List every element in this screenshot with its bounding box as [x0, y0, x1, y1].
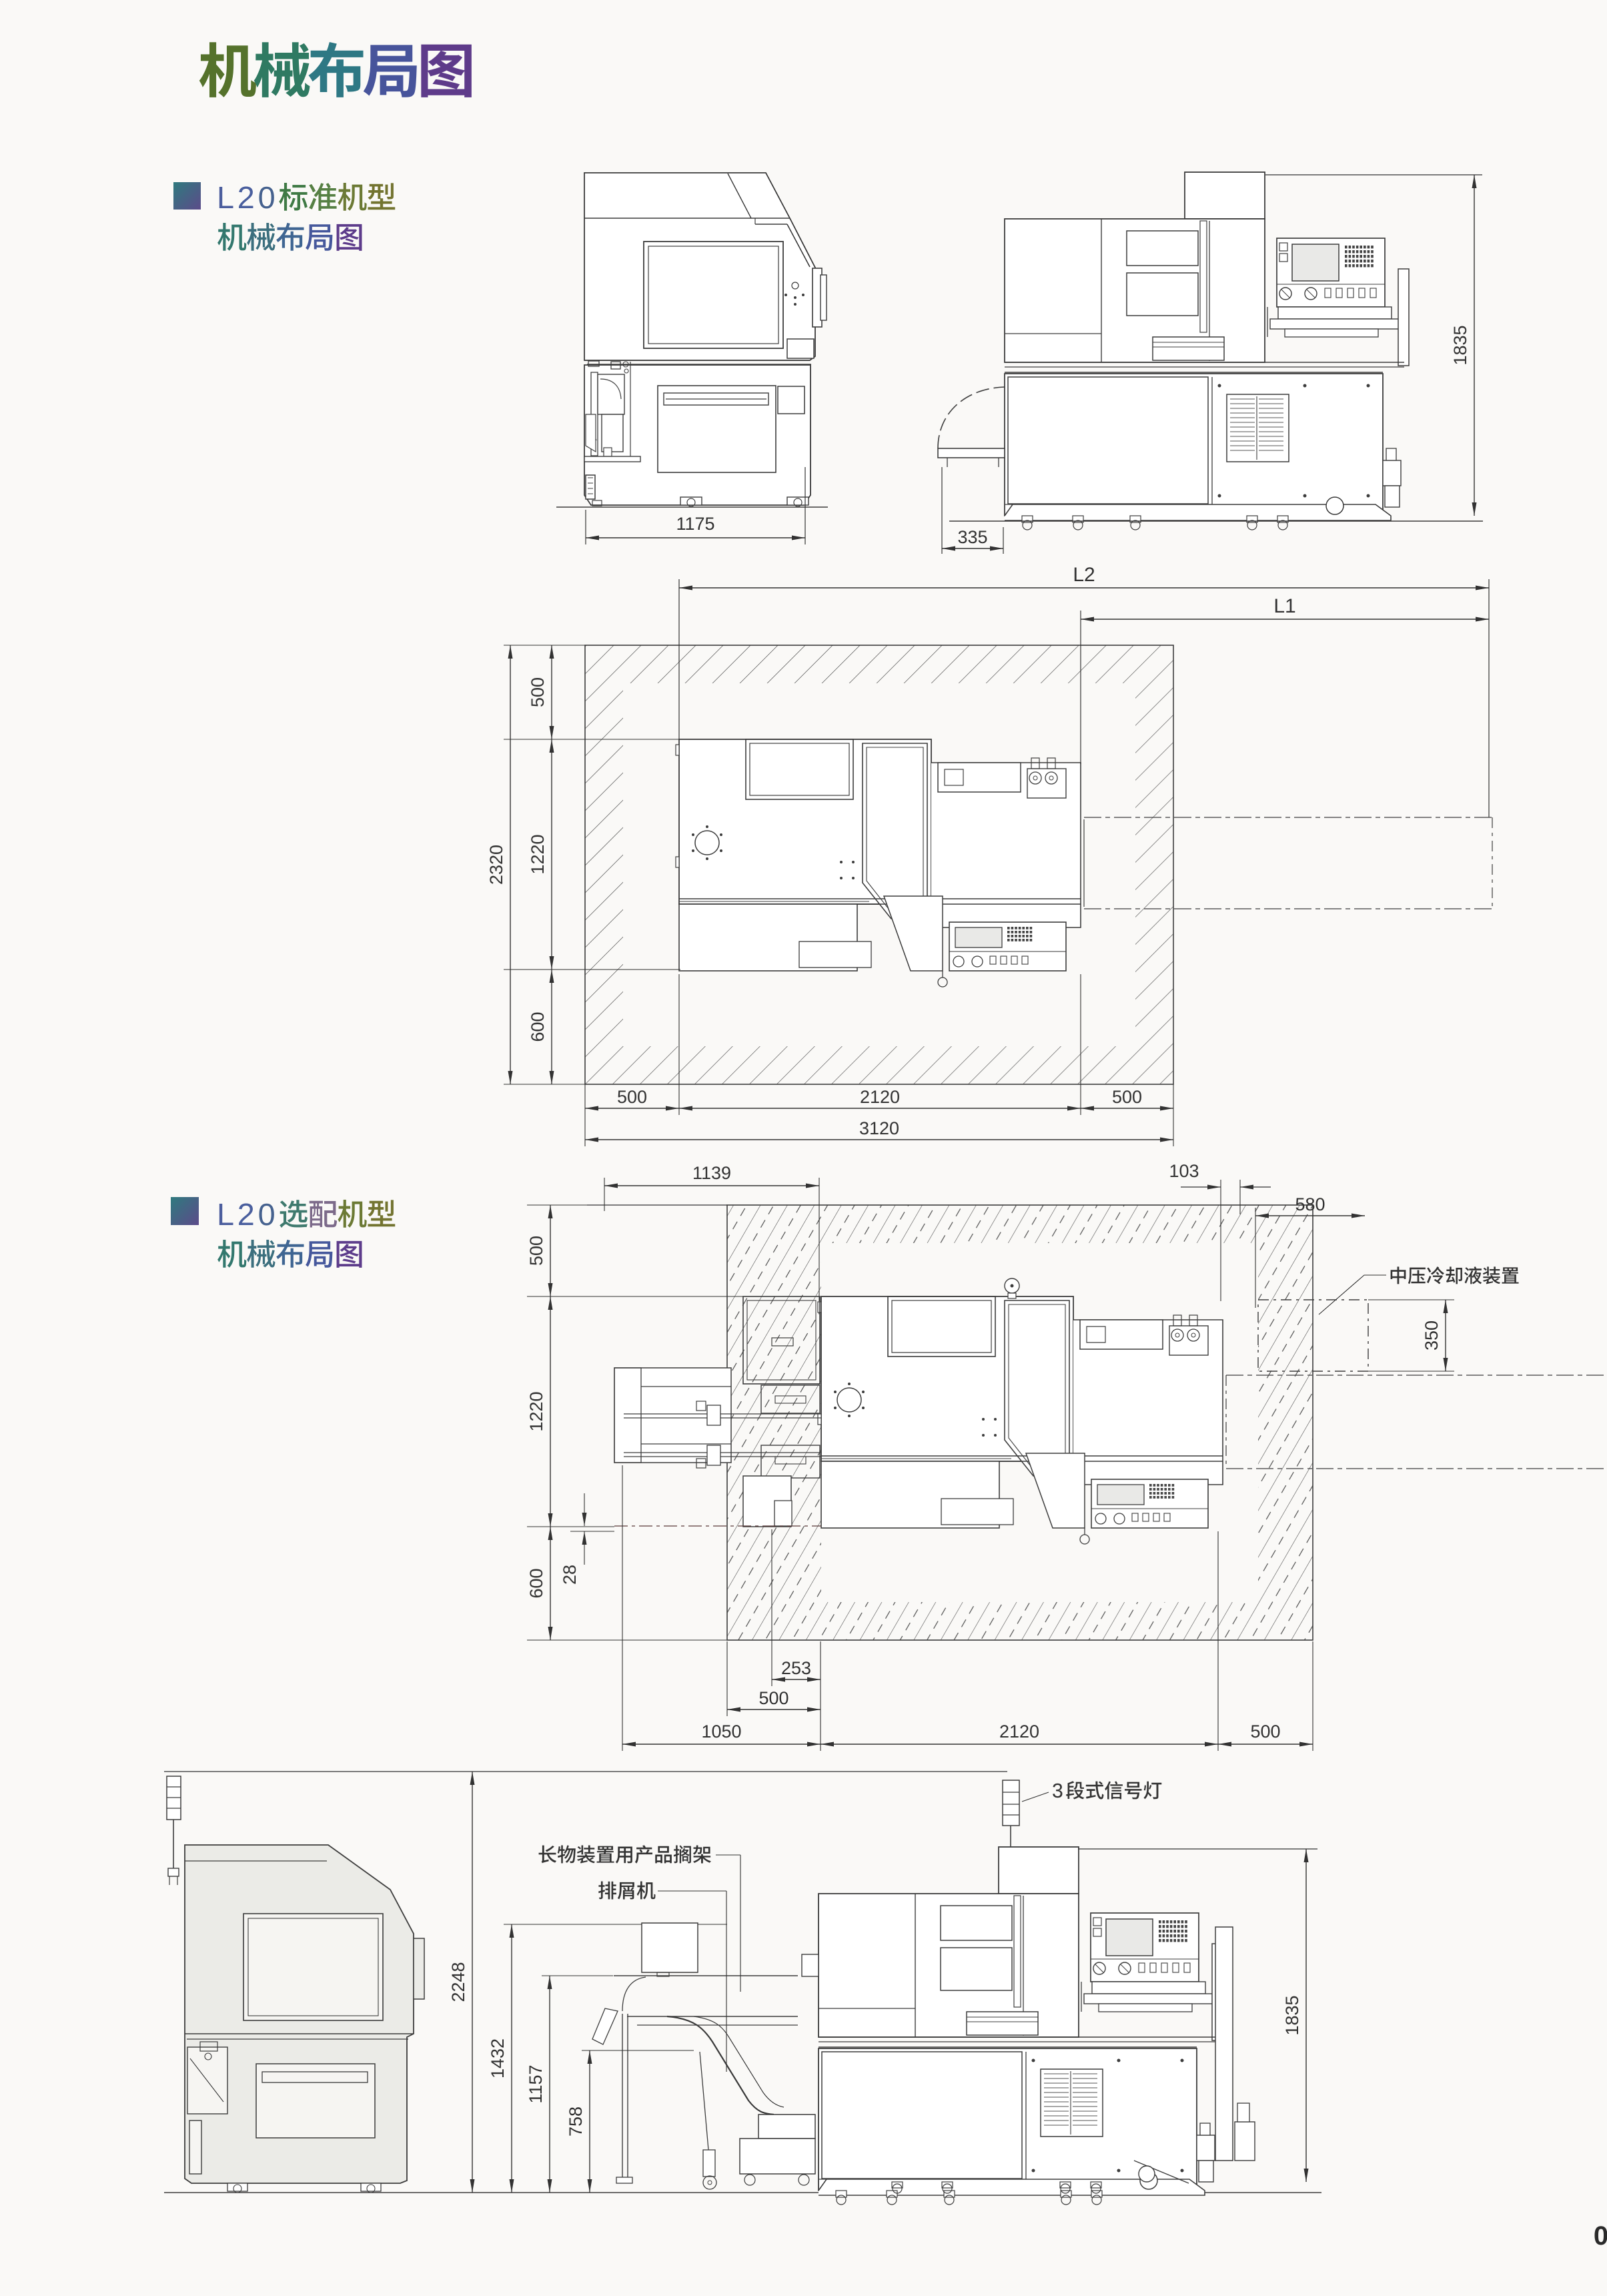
svg-text:500: 500 — [528, 677, 548, 707]
svg-text:2: 2 — [237, 1197, 255, 1232]
svg-text:0: 0 — [1594, 2221, 1607, 2251]
svg-text:103: 103 — [1169, 1161, 1199, 1181]
svg-text:1050: 1050 — [701, 1721, 741, 1742]
svg-text:1157: 1157 — [526, 2064, 546, 2103]
svg-text:1220: 1220 — [528, 834, 548, 874]
svg-text:600: 600 — [528, 1012, 548, 1042]
svg-text:2248: 2248 — [448, 1962, 468, 2002]
svg-text:L2: L2 — [1073, 564, 1095, 586]
svg-text:758: 758 — [566, 2107, 586, 2137]
svg-text:2120: 2120 — [999, 1721, 1039, 1742]
svg-text:253: 253 — [781, 1658, 811, 1678]
svg-text:2320: 2320 — [486, 845, 506, 885]
svg-text:1220: 1220 — [526, 1391, 546, 1431]
svg-text:L: L — [217, 180, 234, 215]
svg-text:2: 2 — [237, 180, 255, 215]
svg-text:500: 500 — [617, 1087, 647, 1107]
svg-text:500: 500 — [758, 1688, 788, 1708]
svg-text:580: 580 — [1295, 1194, 1325, 1214]
svg-text:3: 3 — [1052, 1780, 1063, 1802]
svg-text:L1: L1 — [1273, 595, 1295, 617]
svg-text:1139: 1139 — [692, 1163, 731, 1183]
svg-text:1175: 1175 — [676, 514, 714, 534]
svg-text:600: 600 — [526, 1568, 546, 1598]
svg-text:1835: 1835 — [1282, 1995, 1302, 2035]
svg-text:2120: 2120 — [860, 1087, 900, 1107]
svg-text:335: 335 — [957, 527, 987, 547]
svg-text:1835: 1835 — [1450, 325, 1470, 365]
svg-text:1432: 1432 — [488, 2038, 508, 2078]
svg-text:3120: 3120 — [859, 1118, 899, 1138]
svg-text:28: 28 — [560, 1565, 580, 1585]
svg-text:500: 500 — [526, 1236, 546, 1266]
svg-text:0: 0 — [258, 180, 276, 215]
svg-text:0: 0 — [258, 1197, 276, 1232]
svg-text:L: L — [217, 1197, 234, 1232]
svg-text:350: 350 — [1422, 1320, 1442, 1351]
svg-text:500: 500 — [1112, 1087, 1142, 1107]
svg-text:500: 500 — [1250, 1721, 1280, 1742]
